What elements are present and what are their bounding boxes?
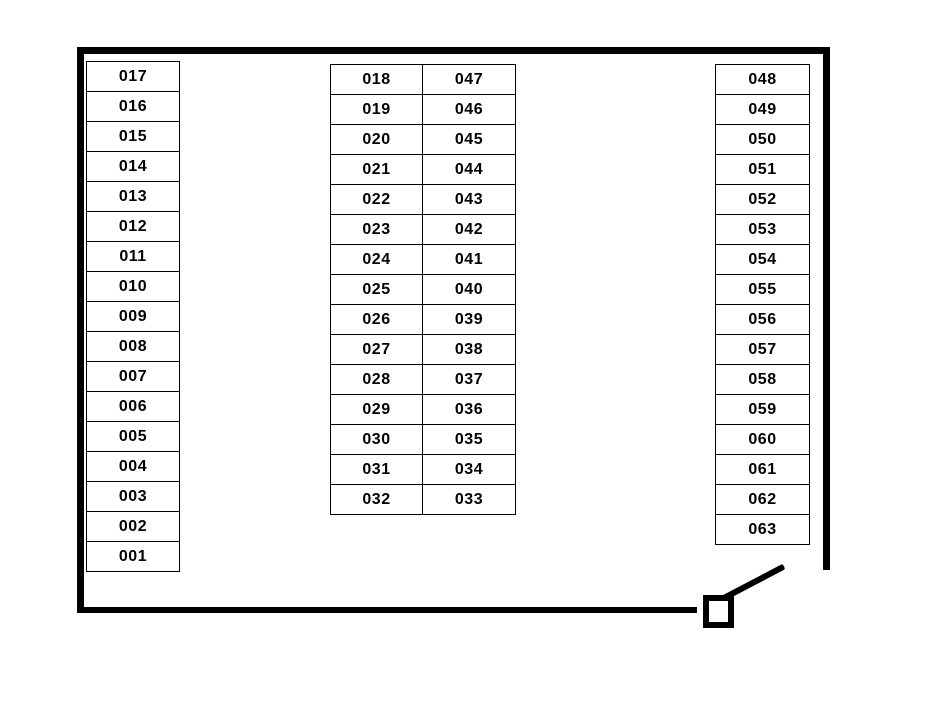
seat-cell: 033 <box>422 484 516 515</box>
seat-cell: 027 <box>330 334 423 365</box>
room-wall-top <box>77 47 830 54</box>
seat-cell: 053 <box>715 214 810 245</box>
seat-cell: 031 <box>330 454 423 485</box>
seat-cell: 044 <box>422 154 516 185</box>
seat-cell: 010 <box>86 271 180 302</box>
door-swing-line-icon <box>721 564 786 602</box>
seat-cell: 004 <box>86 451 180 482</box>
seat-cell: 022 <box>330 184 423 215</box>
seat-cell: 037 <box>422 364 516 395</box>
seat-cell: 019 <box>330 94 423 125</box>
seat-cell: 058 <box>715 364 810 395</box>
seat-cell: 024 <box>330 244 423 275</box>
seat-cell: 034 <box>422 454 516 485</box>
seat-cell: 032 <box>330 484 423 515</box>
seat-cell: 020 <box>330 124 423 155</box>
seat-cell: 015 <box>86 121 180 152</box>
seat-cell: 028 <box>330 364 423 395</box>
seat-cell: 014 <box>86 151 180 182</box>
seat-cell: 047 <box>422 64 516 95</box>
door-icon <box>703 595 734 628</box>
seat-cell: 029 <box>330 394 423 425</box>
seat-column-right: 0480490500510520530540550560570580590600… <box>715 64 810 545</box>
seat-cell: 049 <box>715 94 810 125</box>
seat-cell: 045 <box>422 124 516 155</box>
seat-cell: 013 <box>86 181 180 212</box>
seat-cell: 063 <box>715 514 810 545</box>
seat-cell: 046 <box>422 94 516 125</box>
seat-cell: 030 <box>330 424 423 455</box>
seat-cell: 011 <box>86 241 180 272</box>
seat-cell: 007 <box>86 361 180 392</box>
seat-cell: 003 <box>86 481 180 512</box>
seat-cell: 012 <box>86 211 180 242</box>
seat-cell: 039 <box>422 304 516 335</box>
seat-cell: 055 <box>715 274 810 305</box>
room-wall-left <box>77 47 84 613</box>
seat-cell: 005 <box>86 421 180 452</box>
seat-cell: 009 <box>86 301 180 332</box>
seat-column-left: 0170160150140130120110100090080070060050… <box>86 61 180 572</box>
seat-cell: 051 <box>715 154 810 185</box>
seat-cell: 054 <box>715 244 810 275</box>
seat-cell: 023 <box>330 214 423 245</box>
seat-cell: 042 <box>422 214 516 245</box>
room-wall-right <box>823 47 830 570</box>
seat-cell: 017 <box>86 61 180 92</box>
seat-cell: 062 <box>715 484 810 515</box>
seat-column-middle-left: 0180190200210220230240250260270280290300… <box>330 64 423 515</box>
seat-cell: 021 <box>330 154 423 185</box>
seat-cell: 057 <box>715 334 810 365</box>
seat-cell: 038 <box>422 334 516 365</box>
seat-cell: 036 <box>422 394 516 425</box>
seat-cell: 048 <box>715 64 810 95</box>
seat-cell: 052 <box>715 184 810 215</box>
seat-cell: 061 <box>715 454 810 485</box>
seat-cell: 016 <box>86 91 180 122</box>
seat-cell: 002 <box>86 511 180 542</box>
seat-cell: 060 <box>715 424 810 455</box>
seat-cell: 026 <box>330 304 423 335</box>
seat-cell: 006 <box>86 391 180 422</box>
seat-cell: 008 <box>86 331 180 362</box>
seat-cell: 059 <box>715 394 810 425</box>
seat-cell: 025 <box>330 274 423 305</box>
seat-cell: 035 <box>422 424 516 455</box>
seat-cell: 018 <box>330 64 423 95</box>
seat-column-middle-right: 0470460450440430420410400390380370360350… <box>422 64 516 515</box>
seat-cell: 001 <box>86 541 180 572</box>
seat-cell: 056 <box>715 304 810 335</box>
seat-cell: 050 <box>715 124 810 155</box>
seat-cell: 041 <box>422 244 516 275</box>
seat-cell: 040 <box>422 274 516 305</box>
seat-cell: 043 <box>422 184 516 215</box>
room-seating-diagram: 0170160150140130120110100090080070060050… <box>0 0 933 716</box>
room-wall-bottom <box>77 607 697 613</box>
